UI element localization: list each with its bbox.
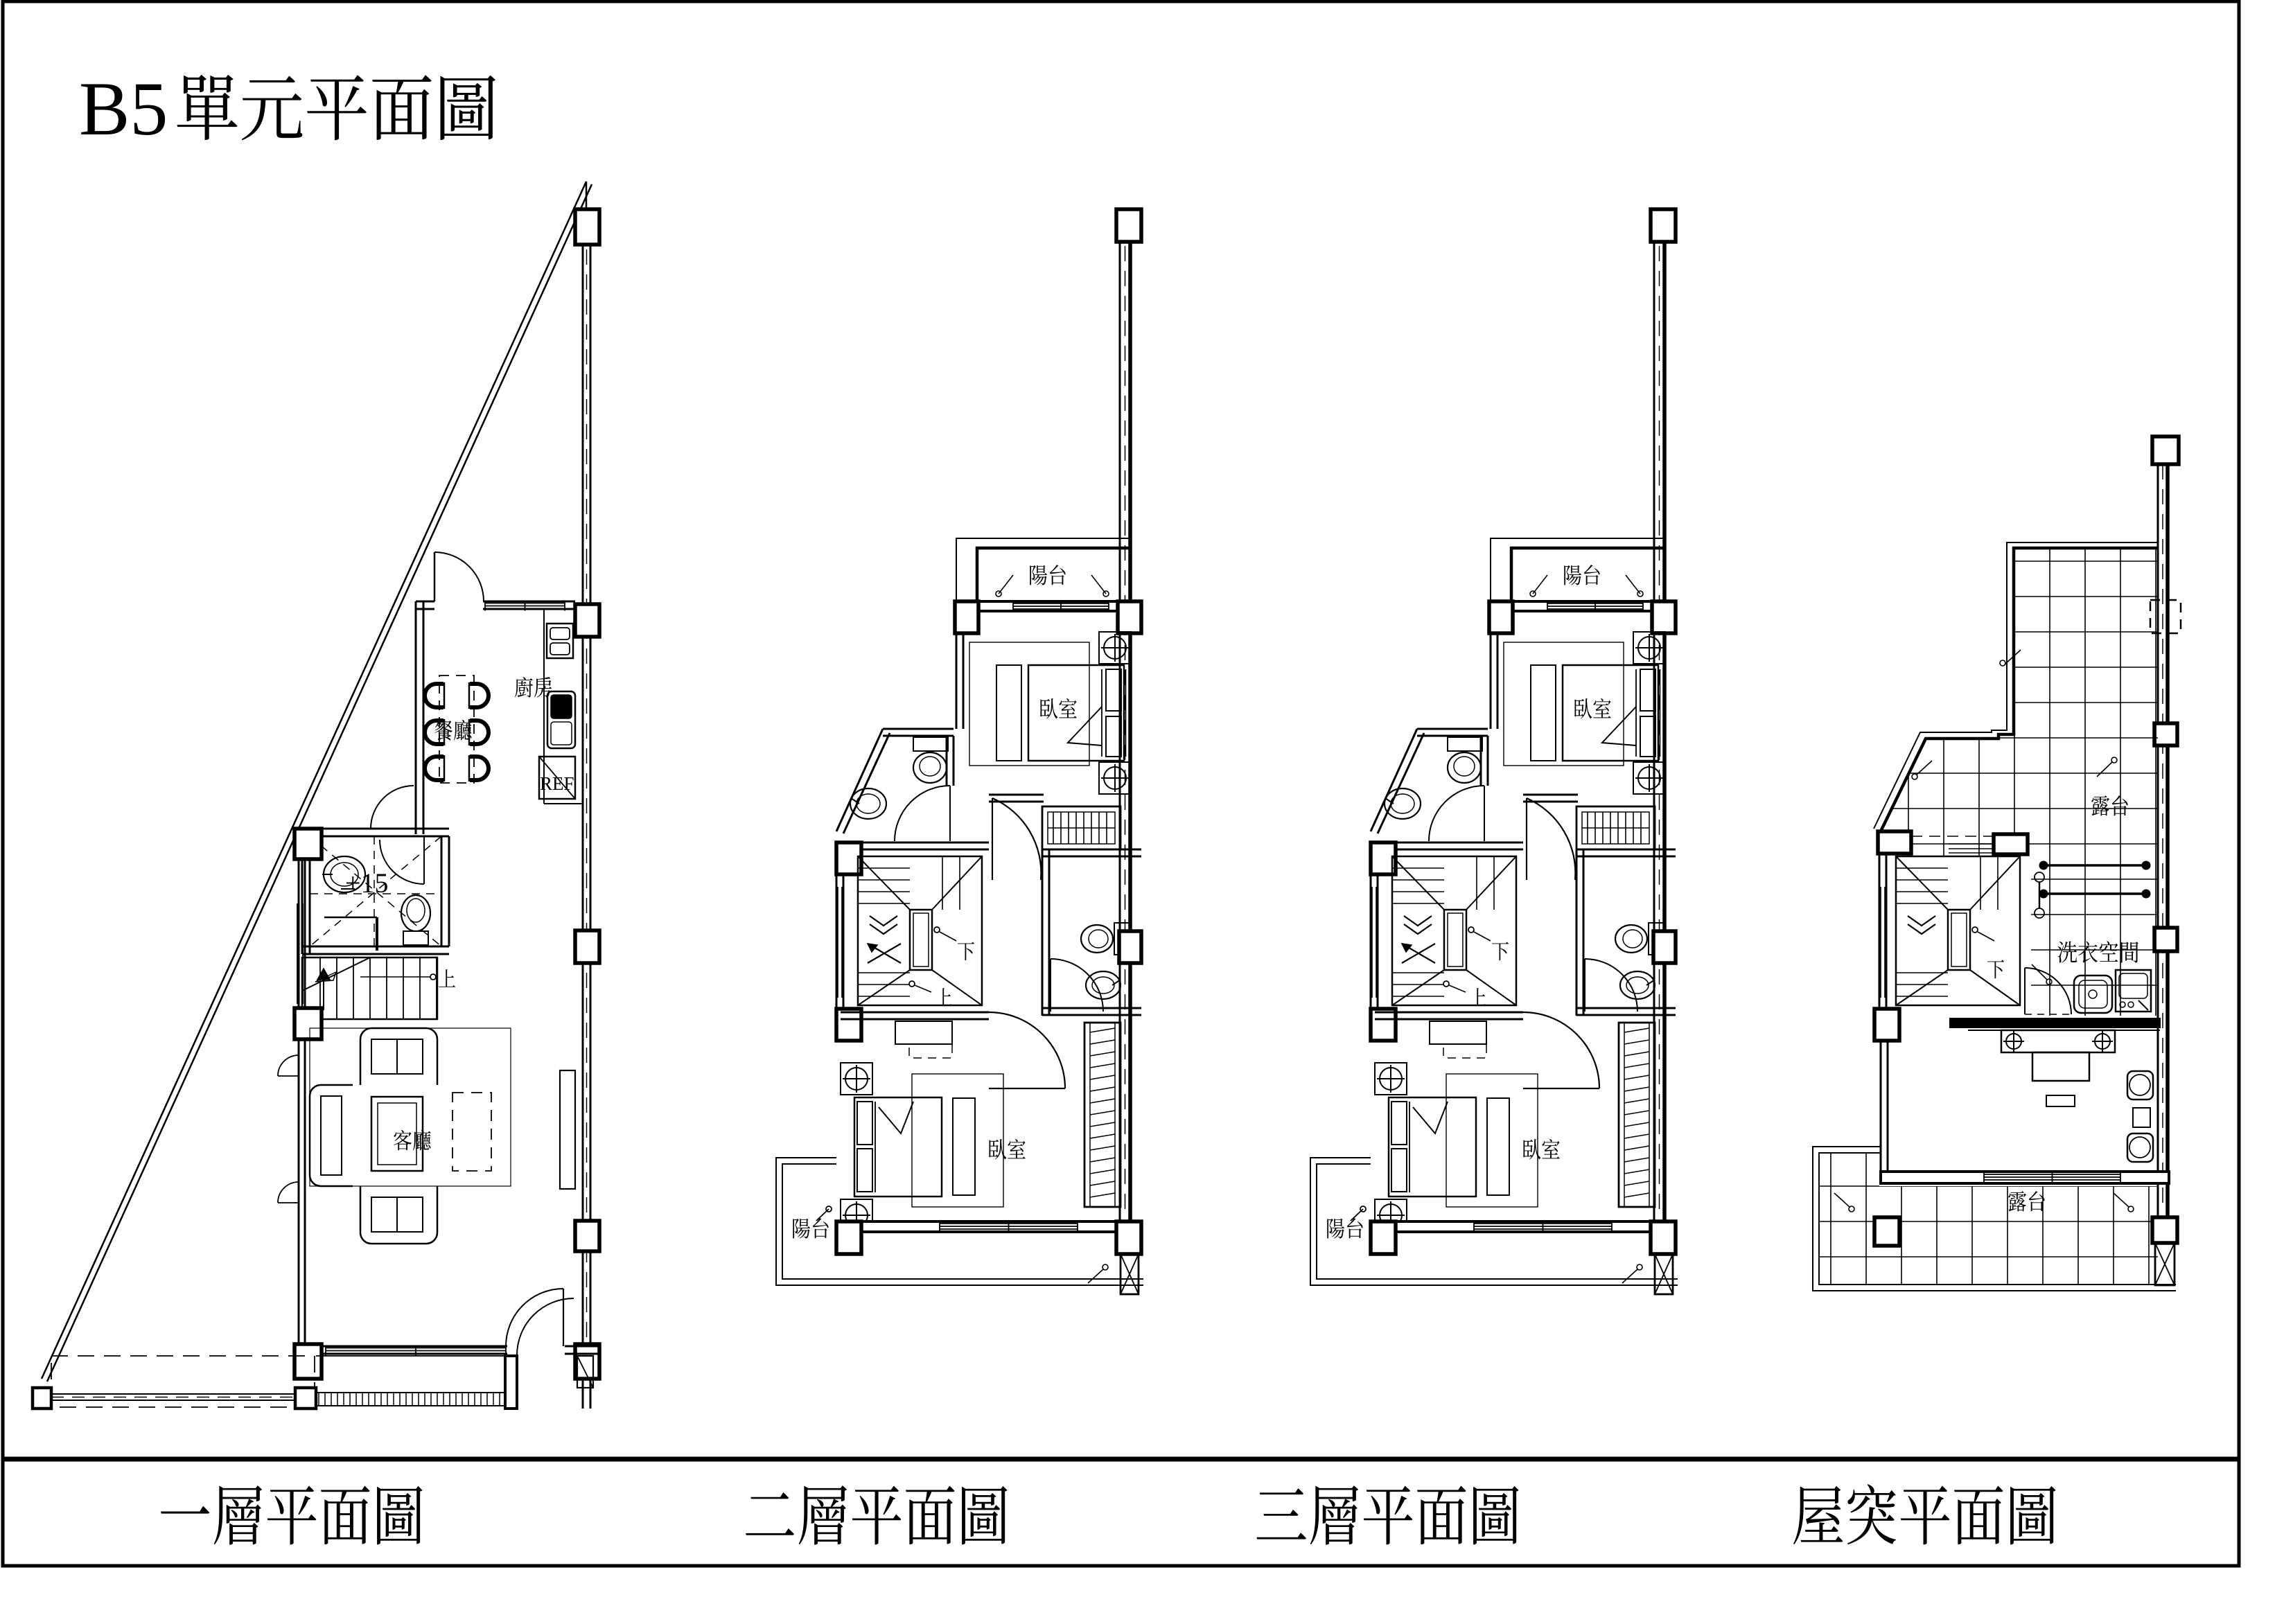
svg-text:+15: +15 bbox=[345, 867, 389, 899]
svg-text:REF: REF bbox=[540, 773, 574, 794]
svg-text:B5: B5 bbox=[79, 67, 168, 151]
